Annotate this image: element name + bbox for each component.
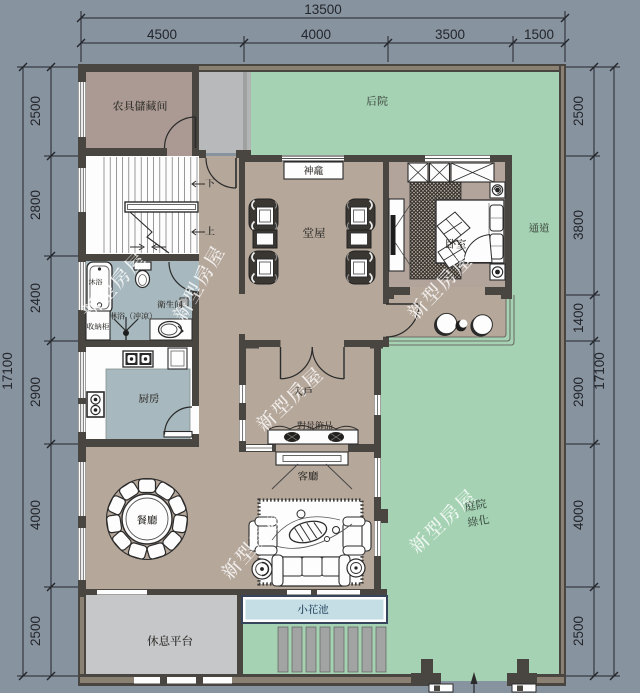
svg-text:4000: 4000 xyxy=(301,27,331,42)
svg-text:13500: 13500 xyxy=(304,2,342,17)
svg-text:3500: 3500 xyxy=(435,27,465,42)
svg-text:4000: 4000 xyxy=(571,500,586,530)
svg-text:3800: 3800 xyxy=(571,210,586,240)
svg-text:2500: 2500 xyxy=(571,96,586,126)
svg-text:2900: 2900 xyxy=(28,377,43,407)
svg-text:2500: 2500 xyxy=(28,616,43,646)
svg-text:1500: 1500 xyxy=(524,27,554,42)
svg-text:2800: 2800 xyxy=(28,190,43,220)
svg-text:1400: 1400 xyxy=(571,303,586,333)
svg-text:2500: 2500 xyxy=(28,96,43,126)
svg-text:2500: 2500 xyxy=(571,616,586,646)
svg-text:4000: 4000 xyxy=(28,500,43,530)
svg-text:2400: 2400 xyxy=(28,283,43,313)
svg-text:4500: 4500 xyxy=(147,27,177,42)
svg-text:17100: 17100 xyxy=(592,352,607,390)
svg-text:2900: 2900 xyxy=(571,377,586,407)
svg-text:17100: 17100 xyxy=(0,352,15,390)
